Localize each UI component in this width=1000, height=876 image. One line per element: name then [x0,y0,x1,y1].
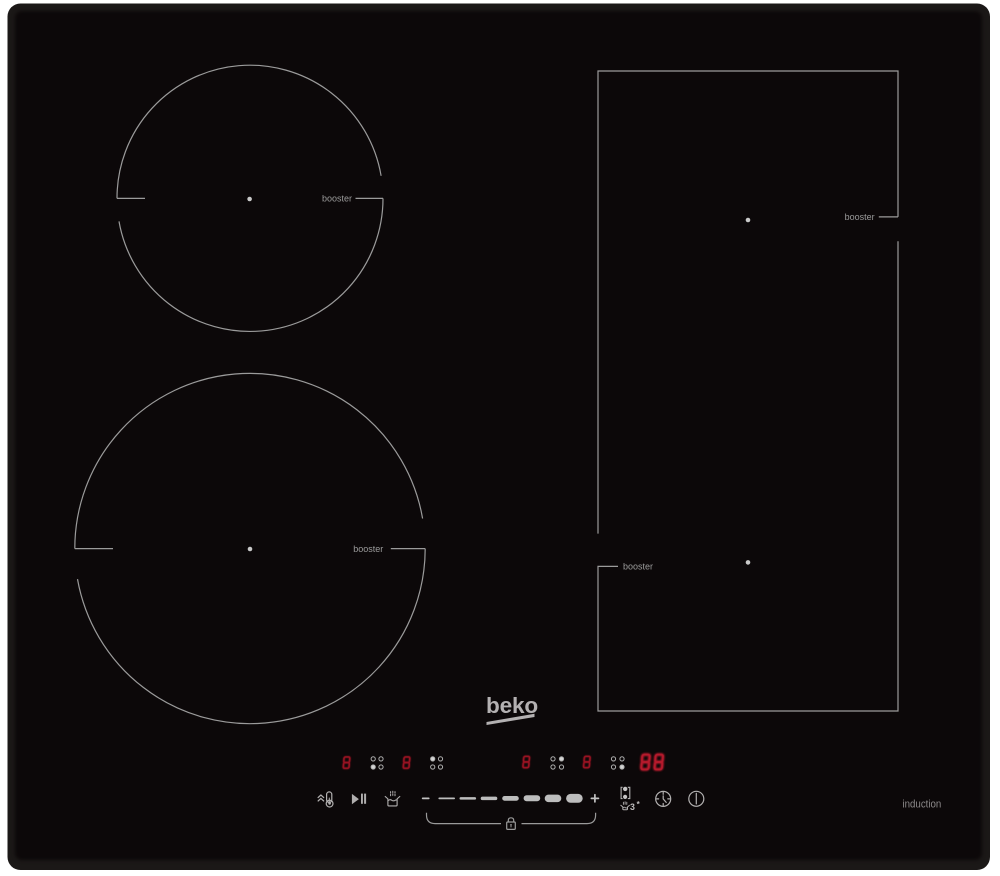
svg-text:booster: booster [353,544,383,554]
svg-text:beko: beko [486,693,538,718]
svg-text:booster: booster [845,212,875,222]
svg-text:3: 3 [630,802,635,812]
svg-text:booster: booster [322,194,352,204]
svg-text:booster: booster [623,562,653,572]
svg-text:induction: induction [903,798,942,810]
